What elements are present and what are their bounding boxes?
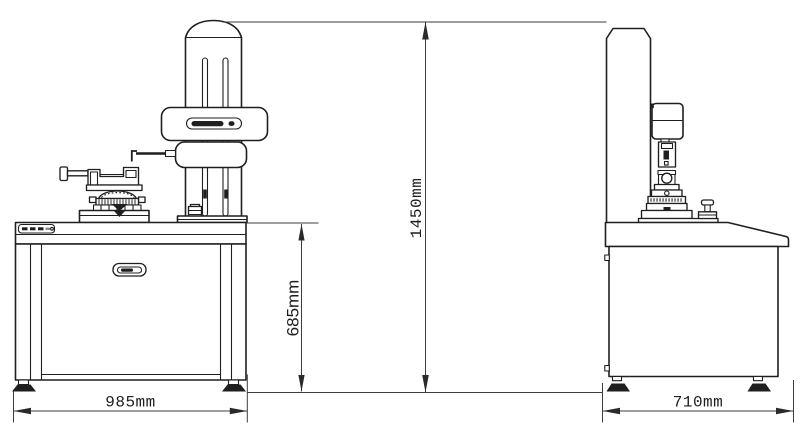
leveling-foot	[748, 384, 772, 392]
vise-screw-rod	[68, 171, 89, 176]
side-probe-assembly	[659, 142, 676, 167]
rail-slider-right	[224, 190, 228, 199]
front-head-carriage	[162, 108, 268, 141]
side-adjust-knob	[699, 200, 717, 219]
leveling-foot	[12, 385, 36, 392]
side-head-carriage	[650, 104, 683, 143]
panel-button	[46, 228, 51, 230]
drawer-handle	[113, 264, 146, 277]
side-bench-top	[606, 223, 789, 247]
column-base-plate	[178, 216, 248, 223]
vise-base-plate	[87, 185, 143, 191]
side-view-machine	[605, 29, 789, 392]
arrowhead-left	[14, 408, 32, 415]
vise-handle-knob	[60, 167, 68, 181]
arrowhead-down	[298, 375, 304, 392]
side-swivel-clamp	[655, 171, 680, 191]
front-cabinet	[16, 244, 247, 380]
dimension-table-height: 685mm	[284, 224, 305, 392]
leveling-foot	[607, 384, 631, 392]
vise-fixture	[60, 167, 142, 191]
stage-knob-right	[139, 197, 146, 203]
arrowhead-down	[422, 375, 429, 393]
panel-button	[30, 227, 36, 230]
arrowhead-left	[603, 408, 621, 415]
arrowhead-up	[422, 22, 429, 40]
control-panel	[19, 225, 55, 234]
drawing-canvas: 1450mm 685mm 985mm 710mm	[0, 0, 801, 432]
side-cabinet	[605, 247, 778, 377]
dimension-front-width: 985mm	[14, 394, 248, 415]
stage-knob-left	[90, 197, 97, 203]
total-height-label: 1450mm	[408, 178, 426, 239]
panel-button	[22, 227, 28, 230]
leveling-foot	[222, 385, 246, 392]
dimension-drawing: 1450mm 685mm 985mm 710mm	[0, 0, 801, 432]
front-bench-top	[16, 223, 247, 245]
side-depth-label: 710mm	[673, 394, 724, 412]
front-feet	[12, 380, 246, 392]
hinge	[605, 255, 610, 261]
panel-button	[38, 227, 44, 230]
stylus-arm	[132, 151, 176, 162]
hinge	[605, 366, 610, 372]
front-probe-carrier	[176, 142, 247, 168]
arrowhead-right	[776, 408, 794, 415]
arrowhead-right	[230, 408, 248, 415]
rail-slider-left	[203, 190, 207, 199]
front-width-label: 985mm	[105, 394, 156, 412]
dimension-side-depth: 710mm	[603, 394, 794, 415]
dimension-total-height: 1450mm	[408, 22, 429, 393]
side-column	[607, 29, 651, 223]
side-feet	[607, 377, 772, 392]
arrowhead-up	[298, 224, 304, 241]
front-view-machine	[12, 21, 268, 392]
table-height-label: 685mm	[284, 280, 303, 337]
